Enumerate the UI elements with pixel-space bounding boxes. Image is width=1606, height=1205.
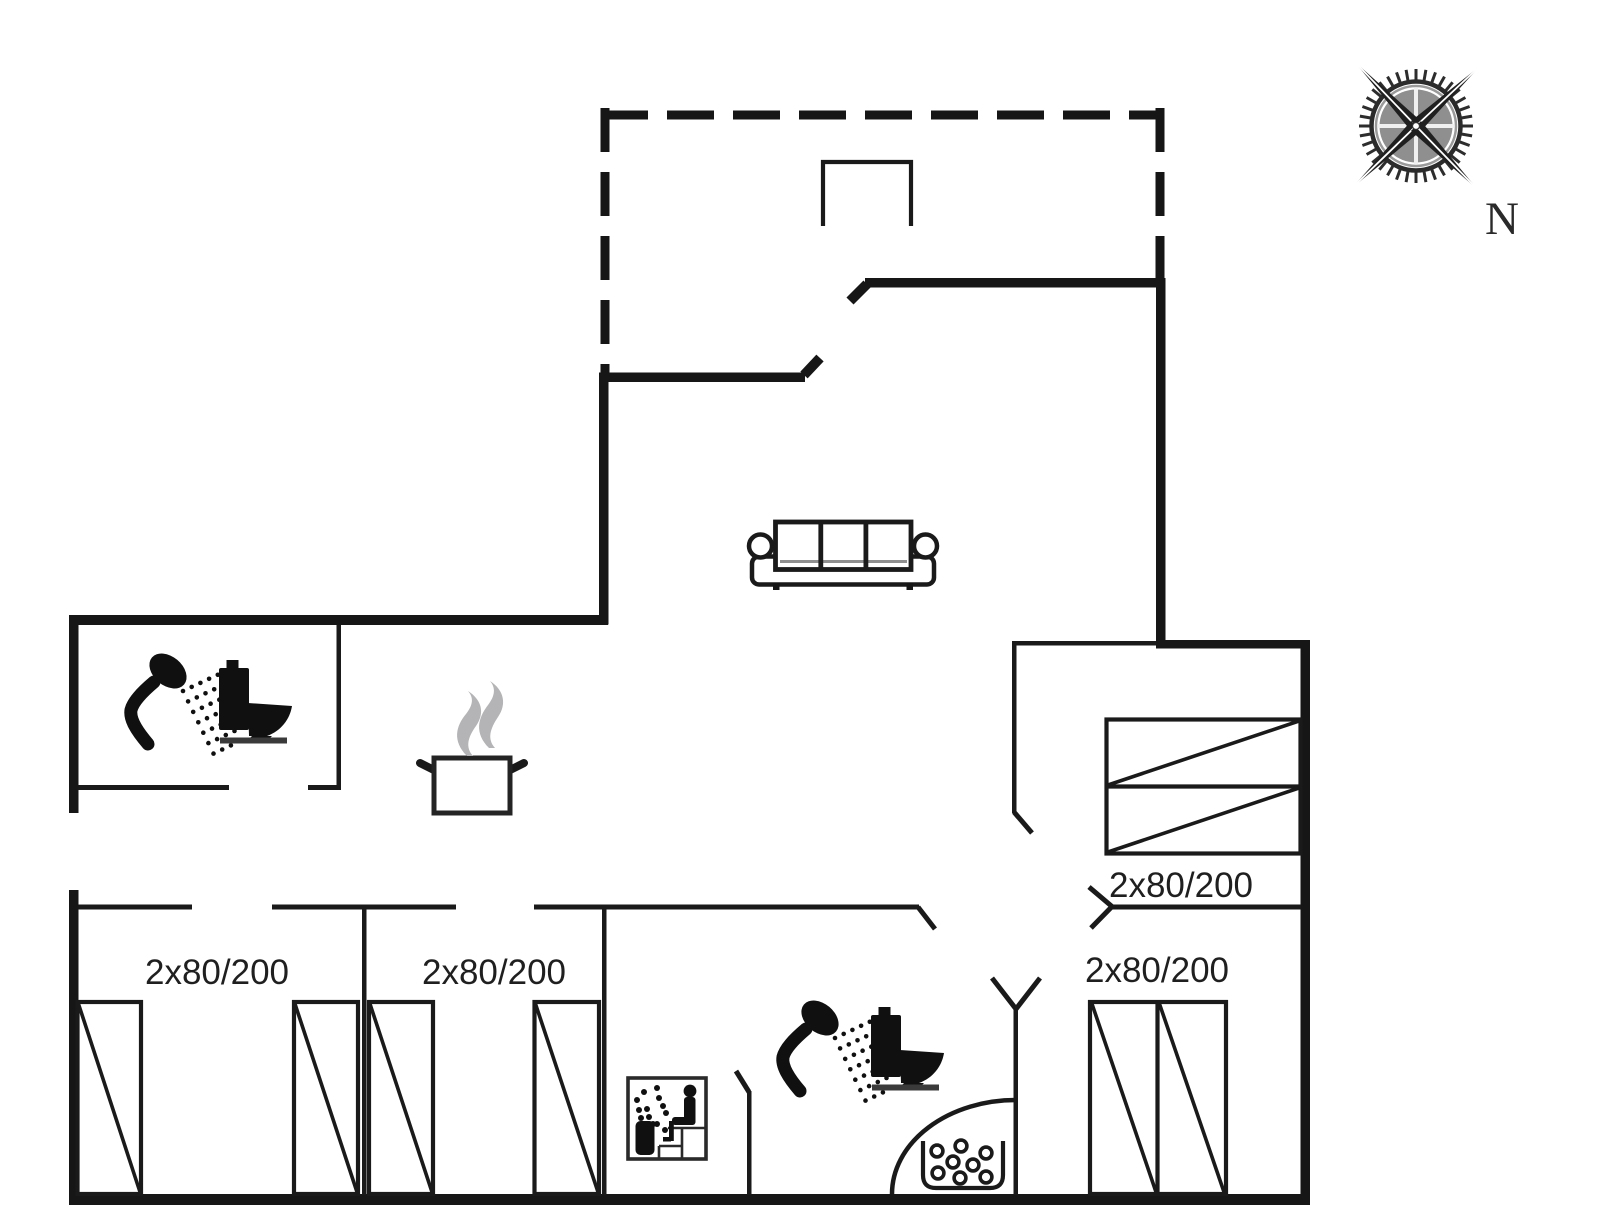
svg-text:2x80/200: 2x80/200	[145, 953, 289, 992]
svg-text:2x80/200: 2x80/200	[1085, 951, 1229, 990]
svg-text:N: N	[1485, 193, 1519, 245]
svg-text:2x80/200: 2x80/200	[422, 953, 566, 992]
svg-text:2x80/200: 2x80/200	[1109, 866, 1253, 905]
